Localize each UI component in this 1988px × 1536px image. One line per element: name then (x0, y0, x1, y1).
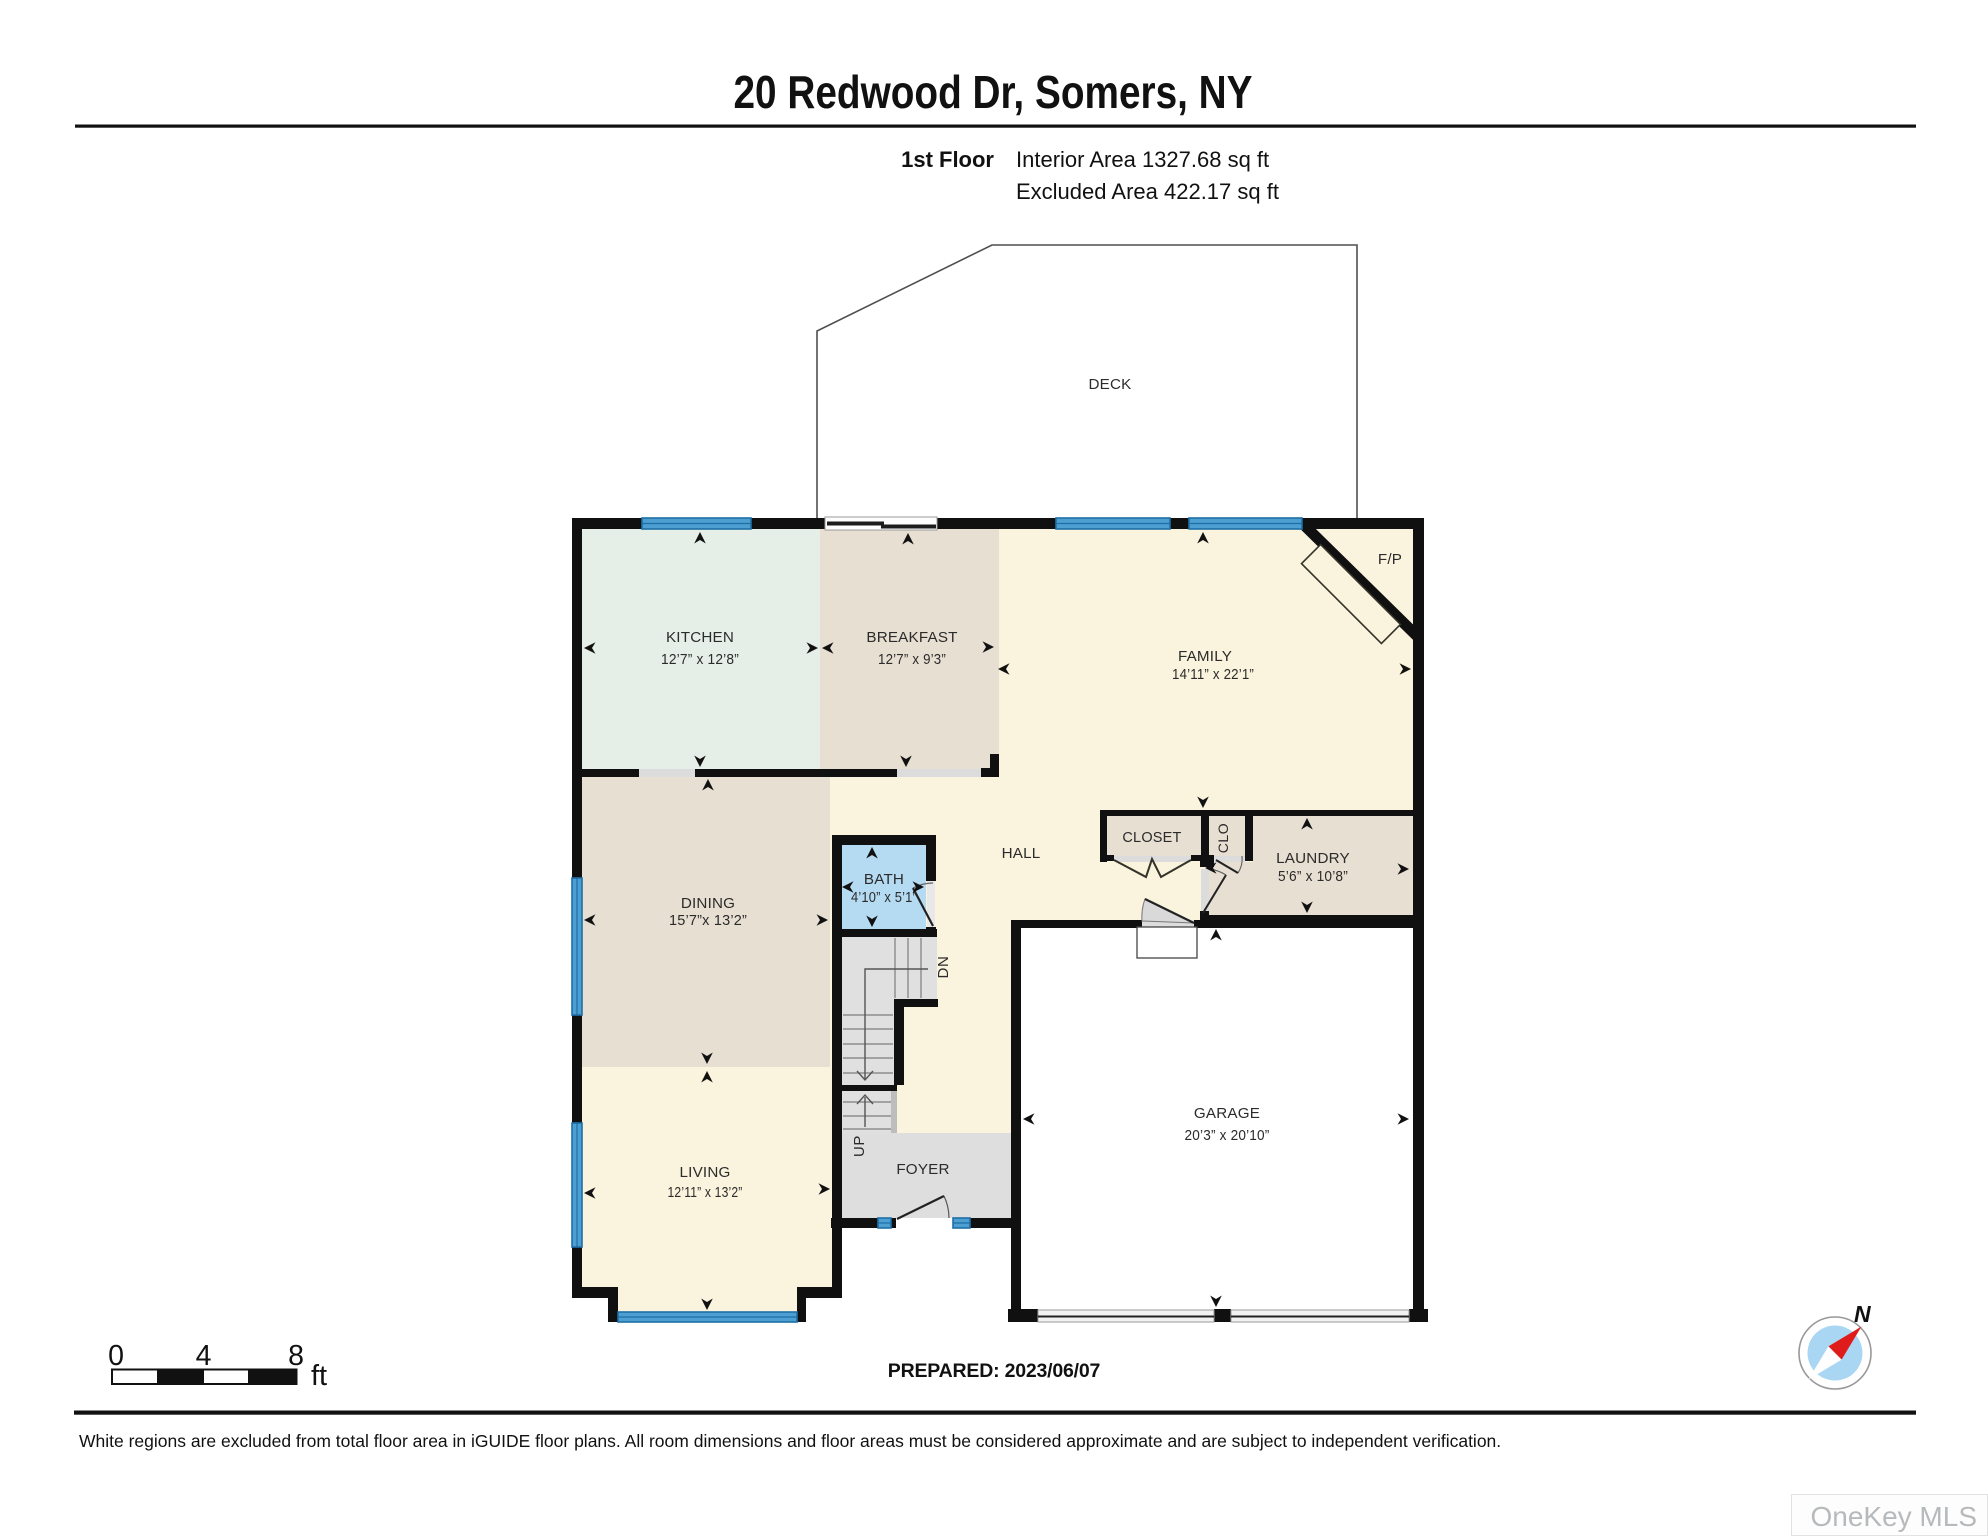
svg-text:F/P: F/P (1378, 551, 1402, 568)
svg-text:LIVING: LIVING (680, 1164, 731, 1181)
svg-text:N: N (1854, 1301, 1871, 1327)
svg-text:DECK: DECK (1089, 376, 1132, 393)
svg-text:15’7”x 13’2”: 15’7”x 13’2” (669, 913, 747, 929)
svg-text:BATH: BATH (864, 871, 904, 888)
svg-text:GARAGE: GARAGE (1194, 1105, 1260, 1122)
svg-text:FAMILY: FAMILY (1178, 648, 1232, 665)
svg-text:12’7” x 12’8”: 12’7” x 12’8” (661, 652, 739, 668)
svg-text:White regions are excluded fro: White regions are excluded from total fl… (79, 1431, 1501, 1451)
svg-text:12’11” x 13’2”: 12’11” x 13’2” (668, 1185, 743, 1201)
svg-text:4: 4 (196, 1340, 212, 1372)
svg-text:8: 8 (288, 1340, 304, 1372)
svg-text:PREPARED: 2023/06/07: PREPARED: 2023/06/07 (888, 1360, 1100, 1382)
svg-text:1st Floor: 1st Floor (901, 147, 994, 172)
svg-text:Excluded Area 422.17 sq ft: Excluded Area 422.17 sq ft (1016, 179, 1279, 204)
svg-text:CLOSET: CLOSET (1122, 830, 1181, 846)
svg-text:ft: ft (311, 1360, 327, 1392)
svg-text:LAUNDRY: LAUNDRY (1276, 850, 1350, 867)
svg-text:UP: UP (851, 1135, 868, 1157)
svg-text:20’3” x 20’10”: 20’3” x 20’10” (1185, 1128, 1270, 1144)
svg-text:KITCHEN: KITCHEN (666, 629, 734, 646)
svg-text:CLO: CLO (1215, 823, 1231, 854)
svg-text:HALL: HALL (1002, 845, 1041, 862)
svg-text:OneKey MLS: OneKey MLS (1810, 1501, 1977, 1532)
svg-text:12’7” x 9’3”: 12’7” x 9’3” (878, 652, 946, 668)
svg-text:Interior Area 1327.68 sq ft: Interior Area 1327.68 sq ft (1016, 147, 1269, 172)
svg-text:FOYER: FOYER (896, 1161, 949, 1178)
svg-text:DINING: DINING (681, 895, 735, 912)
svg-text:5’6” x 10’8”: 5’6” x 10’8” (1278, 869, 1348, 885)
svg-text:4’10” x 5’1”: 4’10” x 5’1” (851, 890, 917, 906)
svg-text:BREAKFAST: BREAKFAST (866, 629, 957, 646)
svg-text:14’11” x 22’1”: 14’11” x 22’1” (1172, 667, 1254, 683)
svg-text:20 Redwood Dr, Somers, NY: 20 Redwood Dr, Somers, NY (734, 66, 1253, 118)
svg-text:DN: DN (935, 956, 952, 979)
svg-text:0: 0 (108, 1340, 124, 1372)
